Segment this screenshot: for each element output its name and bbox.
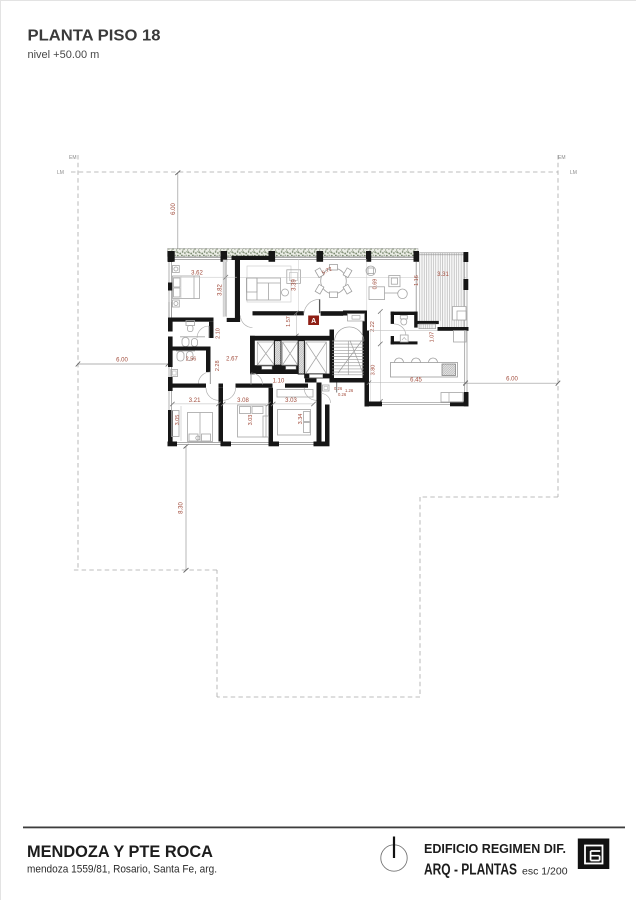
svg-text:3.39: 3.39 [292,279,298,291]
svg-text:3.03: 3.03 [248,415,254,426]
svg-text:3.34: 3.34 [298,414,304,425]
svg-text:1.07: 1.07 [429,332,435,343]
svg-text:6.00: 6.00 [171,203,177,215]
svg-text:mendoza 1559/81, Rosario, Sant: mendoza 1559/81, Rosario, Santa Fe, arg. [27,864,217,876]
svg-text:esc 1/200: esc 1/200 [522,866,568,878]
svg-text:EM: EM [69,155,77,161]
svg-text:A: A [311,318,316,325]
svg-text:3.05: 3.05 [175,415,181,426]
svg-text:3.31: 3.31 [437,272,449,278]
svg-text:3.03: 3.03 [285,398,297,404]
svg-text:2.56: 2.56 [186,357,197,363]
svg-text:3.21: 3.21 [189,398,201,404]
svg-text:6.00: 6.00 [116,358,128,364]
svg-text:1.10: 1.10 [273,379,285,385]
svg-text:3.62: 3.62 [191,271,203,277]
svg-text:1.57: 1.57 [286,316,292,327]
svg-text:EM: EM [558,155,566,161]
svg-text:LM: LM [57,170,64,176]
svg-text:8.30: 8.30 [179,502,185,514]
svg-text:LM: LM [570,170,577,176]
svg-text:2.22: 2.22 [370,321,376,332]
svg-text:3.80: 3.80 [371,365,377,376]
svg-text:0.26: 0.26 [334,386,343,391]
svg-text:2.10: 2.10 [216,328,222,339]
svg-text:3.08: 3.08 [237,398,249,404]
svg-text:PLANTA PISO 18: PLANTA PISO 18 [28,28,161,45]
svg-text:EDIFICIO REGIMEN DIF.: EDIFICIO REGIMEN DIF. [424,841,566,856]
svg-text:ARQ - PLANTAS: ARQ - PLANTAS [424,862,517,879]
svg-text:3.82: 3.82 [218,284,224,296]
svg-text:1.26: 1.26 [345,388,354,393]
svg-text:nivel +50.00 m: nivel +50.00 m [28,49,100,61]
svg-text:6.45: 6.45 [410,378,422,384]
svg-text:MENDOZA Y PTE ROCA: MENDOZA Y PTE ROCA [27,843,213,861]
svg-text:2.67: 2.67 [226,357,238,363]
svg-text:2.28: 2.28 [215,360,221,371]
svg-text:0.69: 0.69 [372,279,378,290]
svg-text:6.00: 6.00 [506,377,518,383]
svg-text:1.16: 1.16 [414,275,420,286]
